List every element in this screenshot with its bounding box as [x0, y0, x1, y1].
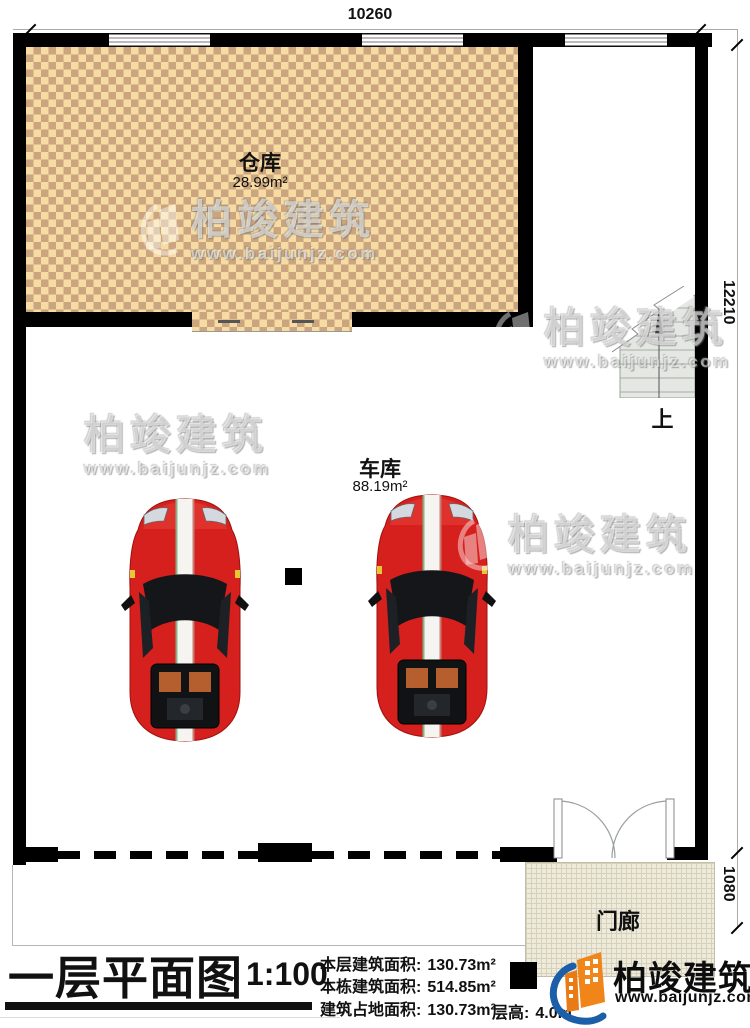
stat-floor-area: 本层建筑面积:130.73m²	[320, 951, 496, 975]
window-top-1	[109, 33, 210, 47]
stair-direction-label: 上	[640, 402, 685, 434]
wall-top	[13, 33, 109, 47]
wall-center-pier	[258, 843, 312, 862]
watermark-building-icon	[452, 515, 500, 573]
watermark-brand: 柏竣建筑	[544, 308, 731, 349]
wall-storage-bottom-left	[26, 312, 192, 327]
title-underline	[5, 1002, 312, 1010]
brand-logo-url: www.baijunjz.com	[615, 989, 750, 1007]
floor-plan-canvas: 10260 12210 1080 上	[0, 0, 750, 1028]
watermark-brand: 柏竣建筑	[191, 200, 378, 241]
watermark: 柏竣建筑www.baijunjz.com	[28, 415, 271, 479]
watermark-url: www.baijunjz.com	[544, 352, 731, 372]
watermark-building-icon	[28, 415, 76, 473]
drawing-scale: 1:100	[246, 956, 328, 993]
watermark-brand: 柏竣建筑	[508, 515, 695, 556]
watermark-brand: 柏竣建筑	[84, 415, 271, 456]
porch-room-name: 门廊	[558, 904, 678, 936]
window-top-2	[362, 33, 463, 47]
watermark: 柏竣建筑www.baijunjz.com	[488, 308, 731, 372]
drawing-title: 一层平面图	[8, 942, 243, 1008]
brand-logo-icon	[543, 948, 615, 1026]
storage-room-name: 仓库	[200, 147, 320, 177]
threshold-mark	[292, 320, 314, 323]
wall-top	[463, 33, 565, 47]
watermark-url: www.baijunjz.com	[191, 244, 378, 264]
dimension-porch-depth: 1080	[719, 866, 737, 902]
wall-top	[667, 33, 712, 47]
watermark: 柏竣建筑www.baijunjz.com	[452, 515, 695, 579]
wall-top	[210, 33, 362, 47]
structural-column	[285, 568, 302, 585]
column-legend-square	[510, 962, 537, 989]
dimension-line-right	[737, 29, 738, 928]
title-secondary-line	[0, 1017, 340, 1018]
wall-right	[695, 47, 708, 860]
garage-door-opening-2	[312, 851, 500, 859]
car-left	[119, 496, 251, 744]
dimension-top-width: 10260	[330, 6, 410, 24]
wall-storage-right	[518, 47, 533, 312]
dimension-line-top	[13, 29, 737, 30]
entry-double-door	[545, 790, 685, 865]
watermark-url: www.baijunjz.com	[508, 559, 695, 579]
storage-door-opening-floor	[192, 312, 352, 332]
threshold-mark	[218, 320, 240, 323]
stat-footprint-area: 建筑占地面积:130.73m²	[320, 996, 496, 1020]
window-top-3	[565, 33, 667, 47]
watermark: 柏竣建筑www.baijunjz.com	[135, 200, 378, 264]
watermark-url: www.baijunjz.com	[84, 459, 271, 479]
watermark-building-icon	[488, 308, 536, 366]
wall-left	[13, 47, 26, 865]
storage-room-area: 28.99m²	[200, 174, 320, 191]
driveway-apron-outline	[12, 865, 526, 946]
garage-room-area: 88.19m²	[320, 478, 440, 495]
watermark-building-icon	[135, 200, 183, 258]
garage-door-opening-1	[58, 851, 258, 859]
wall-bottom-left-stub	[26, 847, 58, 862]
stat-building-area: 本栋建筑面积:514.85m²	[320, 973, 496, 997]
